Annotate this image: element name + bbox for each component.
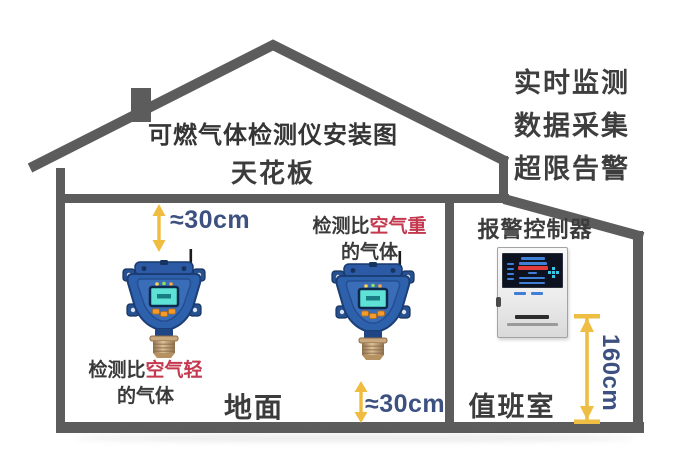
interior-wall [445, 194, 454, 432]
duty-room-label: 值班室 [466, 385, 558, 424]
controller-lock-icon [496, 297, 501, 307]
feature-overlimit-alarm: 超限告警 [514, 148, 644, 191]
annex-right-wall [633, 231, 643, 432]
heavy-gas-highlight: 空气重 [370, 216, 427, 237]
gas-detector-left [119, 247, 209, 359]
floor-shadow [75, 434, 635, 442]
light-gas-suffix: 的气体 [78, 384, 213, 410]
controller-brand-mark [515, 315, 549, 319]
left-wall [56, 168, 65, 432]
controller-keypad-cross-icon [548, 267, 559, 278]
sensor-probe [150, 336, 178, 358]
floor-gap-measurement: ≈30cm [365, 390, 445, 419]
ceiling-gap-measurement: ≈30cm [170, 206, 250, 235]
heavy-gas-prefix: 检测比 [312, 216, 369, 237]
installation-diagram: 可燃气体检测仪安装图 天花板 实时监测 数据采集 超限告警 ≈30cm ≈30c… [0, 0, 700, 454]
ceiling-label: 天花板 [173, 153, 373, 190]
light-gas-annotation: 检测比空气轻 的气体 [78, 358, 213, 410]
light-gas-prefix: 检测比 [88, 360, 145, 381]
light-gas-highlight: 空气轻 [146, 360, 203, 381]
alarm-controller-device [497, 247, 568, 338]
ground-label: 地面 [214, 386, 294, 426]
controller-subtext [514, 292, 526, 295]
sensor-probe [359, 338, 387, 360]
double-arrow-icon [150, 204, 168, 252]
double-arrow-icon [352, 381, 370, 423]
feature-list: 实时监测 数据采集 超限告警 [514, 62, 644, 191]
controller-height-measurement: 160cm [596, 334, 624, 412]
gas-detector-right [328, 249, 418, 361]
alarm-controller-label: 报警控制器 [475, 212, 595, 244]
diagram-title: 可燃气体检测仪安装图 [133, 115, 413, 150]
feature-data-collection: 数据采集 [514, 105, 644, 148]
controller-screen [502, 253, 563, 288]
controller-fineprint [507, 323, 558, 326]
ceiling-line [56, 194, 509, 203]
feature-realtime-monitoring: 实时监测 [514, 62, 644, 105]
